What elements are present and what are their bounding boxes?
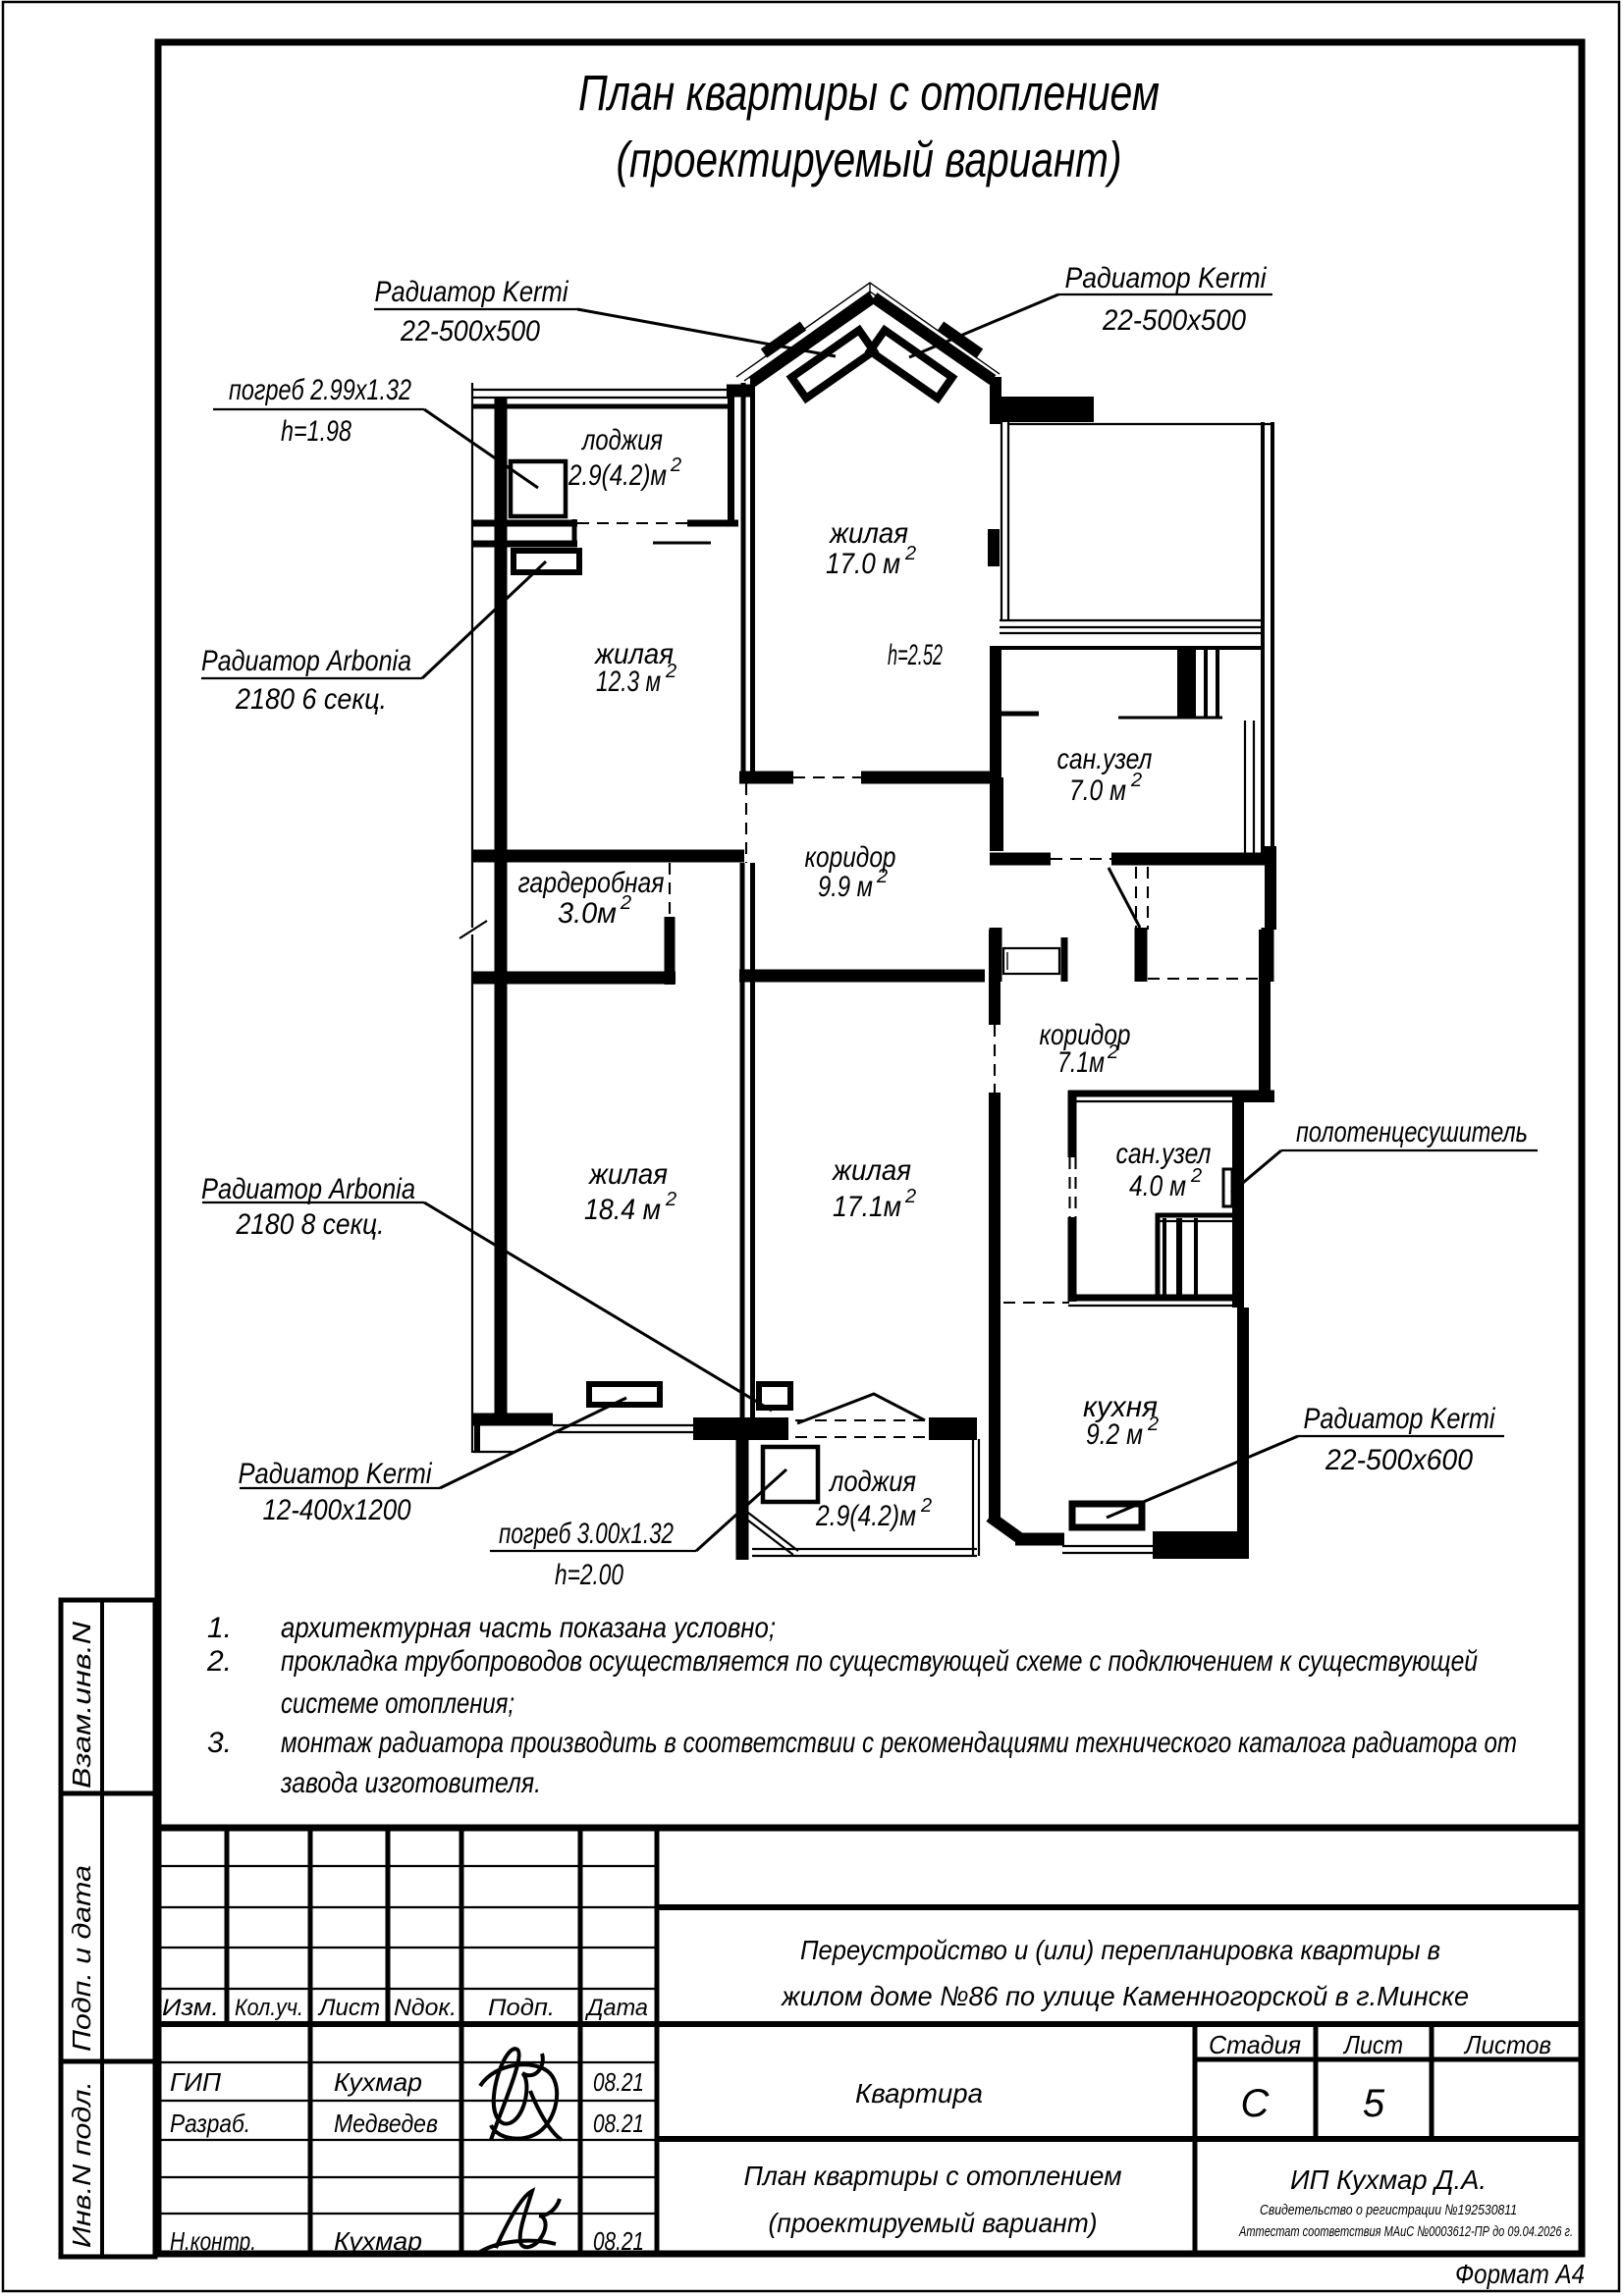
- svg-text:Формат А4: Формат А4: [1455, 2259, 1585, 2289]
- svg-text:Nдок.: Nдок.: [394, 1995, 457, 2021]
- svg-text:(проектируемый вариант): (проектируемый вариант): [769, 2208, 1098, 2238]
- svg-text:2: 2: [665, 1189, 676, 1210]
- svg-text:08.21: 08.21: [593, 2067, 644, 2097]
- svg-text:2.9(4.2)м: 2.9(4.2)м: [568, 459, 667, 492]
- svg-text:С: С: [1241, 2082, 1271, 2125]
- svg-text:Подп.: Подп.: [488, 1995, 555, 2021]
- svg-text:1.: 1.: [207, 1612, 232, 1644]
- svg-text:Кол.уч.: Кол.уч.: [235, 1995, 303, 2021]
- svg-text:гардеробная: гардеробная: [518, 867, 665, 899]
- svg-text:08.21: 08.21: [593, 2109, 644, 2138]
- svg-text:2: 2: [1130, 770, 1142, 791]
- svg-text:Стадия: Стадия: [1209, 2030, 1301, 2059]
- svg-text:h=2.52: h=2.52: [888, 639, 943, 671]
- svg-text:18.4 м: 18.4 м: [584, 1194, 661, 1226]
- svg-text:жилом доме №86 по улице Каменн: жилом доме №86 по улице Каменногорской в…: [780, 1981, 1469, 2011]
- svg-text:2: 2: [620, 892, 631, 914]
- svg-text:Лист: Лист: [317, 1995, 380, 2021]
- svg-text:2: 2: [670, 454, 681, 476]
- svg-text:9.2 м: 9.2 м: [1086, 1418, 1143, 1451]
- svg-text:Кухмар: Кухмар: [334, 2067, 422, 2097]
- svg-text:жилая: жилая: [587, 1158, 668, 1191]
- svg-text:План квартиры с отоплением: План квартиры с отоплением: [578, 65, 1160, 121]
- svg-text:3.0м: 3.0м: [558, 897, 617, 930]
- svg-text:Переустройство и (или) перепла: Переустройство и (или) перепланировка кв…: [800, 1935, 1440, 1965]
- svg-text:h=1.98: h=1.98: [281, 415, 352, 448]
- svg-text:4.0 м: 4.0 м: [1129, 1170, 1186, 1202]
- svg-text:жилая: жилая: [831, 1154, 911, 1187]
- svg-text:(проектируемый вариант): (проектируемый вариант): [617, 132, 1122, 187]
- svg-text:Радиатор Kermi: Радиатор Kermi: [239, 1458, 433, 1490]
- svg-text:9.9 м: 9.9 м: [818, 871, 873, 903]
- svg-text:Свидетельство о регистрации №1: Свидетельство о регистрации №192530811: [1260, 2202, 1517, 2218]
- svg-text:2.9(4.2)м: 2.9(4.2)м: [815, 1500, 916, 1532]
- svg-text:2: 2: [1107, 1041, 1118, 1063]
- svg-text:системе отопления;: системе отопления;: [281, 1687, 514, 1720]
- svg-text:17.0 м: 17.0 м: [826, 548, 900, 580]
- svg-text:Аттестат соответствия МАиС №00: Аттестат соответствия МАиС №0003612-ПР д…: [1238, 2223, 1573, 2240]
- svg-text:погреб 3.00х1.32: погреб 3.00х1.32: [499, 1518, 674, 1550]
- svg-text:Радиатор Arbonia: Радиатор Arbonia: [201, 645, 411, 677]
- svg-text:2180 6 секц.: 2180 6 секц.: [235, 683, 387, 716]
- svg-text:22-500х500: 22-500х500: [1102, 304, 1246, 337]
- svg-text:погреб 2.99х1.32: погреб 2.99х1.32: [229, 374, 411, 406]
- svg-text:2: 2: [1147, 1414, 1159, 1435]
- svg-text:3.: 3.: [207, 1727, 232, 1759]
- svg-text:жилая: жилая: [828, 517, 908, 550]
- svg-text:полотенцесушитель: полотенцесушитель: [1296, 1116, 1528, 1148]
- svg-text:2: 2: [665, 661, 676, 682]
- svg-text:2.: 2.: [206, 1645, 232, 1678]
- svg-text:h=2.00: h=2.00: [555, 1559, 623, 1591]
- svg-text:08.21: 08.21: [593, 2226, 644, 2256]
- svg-text:архитектурная часть показана у: архитектурная часть показана условно;: [281, 1612, 776, 1644]
- svg-text:лоджия: лоджия: [580, 424, 663, 456]
- svg-text:План квартиры с отоплением: План квартиры с отоплением: [744, 2161, 1122, 2191]
- svg-text:Разраб.: Разраб.: [170, 2109, 250, 2138]
- svg-text:Лист: Лист: [1342, 2030, 1403, 2059]
- svg-text:22-500х500: 22-500х500: [400, 315, 540, 347]
- svg-text:Медведев: Медведев: [334, 2109, 438, 2138]
- svg-text:Радиатор Arbonia: Радиатор Arbonia: [201, 1173, 415, 1205]
- svg-text:12-400х1200: 12-400х1200: [263, 1494, 411, 1526]
- svg-text:2180 8 секц.: 2180 8 секц.: [236, 1208, 385, 1241]
- svg-text:2: 2: [904, 543, 916, 564]
- svg-text:2: 2: [904, 1186, 916, 1207]
- svg-text:Радиатор Kermi: Радиатор Kermi: [375, 276, 569, 308]
- svg-text:Инв.N подл.: Инв.N подл.: [67, 2081, 96, 2248]
- svg-text:Взам.инв.N: Взам.инв.N: [67, 1622, 96, 1789]
- svg-text:ГИП: ГИП: [170, 2067, 221, 2097]
- svg-text:Дата: Дата: [584, 1995, 648, 2021]
- svg-text:2: 2: [1190, 1165, 1202, 1187]
- svg-text:Подп. и дата: Подп. и дата: [67, 1865, 96, 2052]
- svg-text:7.1м: 7.1м: [1057, 1046, 1105, 1079]
- svg-text:Листов: Листов: [1463, 2030, 1551, 2059]
- svg-text:Н.контр.: Н.контр.: [170, 2226, 256, 2256]
- svg-text:7.0 м: 7.0 м: [1069, 774, 1126, 807]
- svg-text:12.3 м: 12.3 м: [596, 666, 661, 698]
- svg-text:2: 2: [876, 866, 888, 887]
- svg-text:лоджия: лоджия: [828, 1466, 916, 1498]
- svg-text:2: 2: [920, 1495, 932, 1517]
- svg-text:Радиатор Kermi: Радиатор Kermi: [1304, 1403, 1496, 1435]
- svg-text:монтаж радиатора производить в: монтаж радиатора производить в соответст…: [281, 1727, 1517, 1759]
- svg-text:Кухмар: Кухмар: [334, 2226, 422, 2256]
- svg-text:22-500х600: 22-500х600: [1325, 1444, 1473, 1476]
- svg-text:завода изготовителя.: завода изготовителя.: [280, 1767, 541, 1799]
- svg-text:17.1м: 17.1м: [833, 1191, 901, 1223]
- svg-text:Изм.: Изм.: [162, 1995, 219, 2021]
- svg-text:5: 5: [1363, 2082, 1385, 2125]
- svg-text:Квартира: Квартира: [855, 2078, 983, 2109]
- svg-text:ИП Кухмар Д.А.: ИП Кухмар Д.А.: [1290, 2164, 1487, 2195]
- svg-text:Радиатор Kermi: Радиатор Kermi: [1065, 262, 1268, 294]
- svg-text:прокладка трубопроводов осущес: прокладка трубопроводов осуществляется п…: [281, 1645, 1478, 1678]
